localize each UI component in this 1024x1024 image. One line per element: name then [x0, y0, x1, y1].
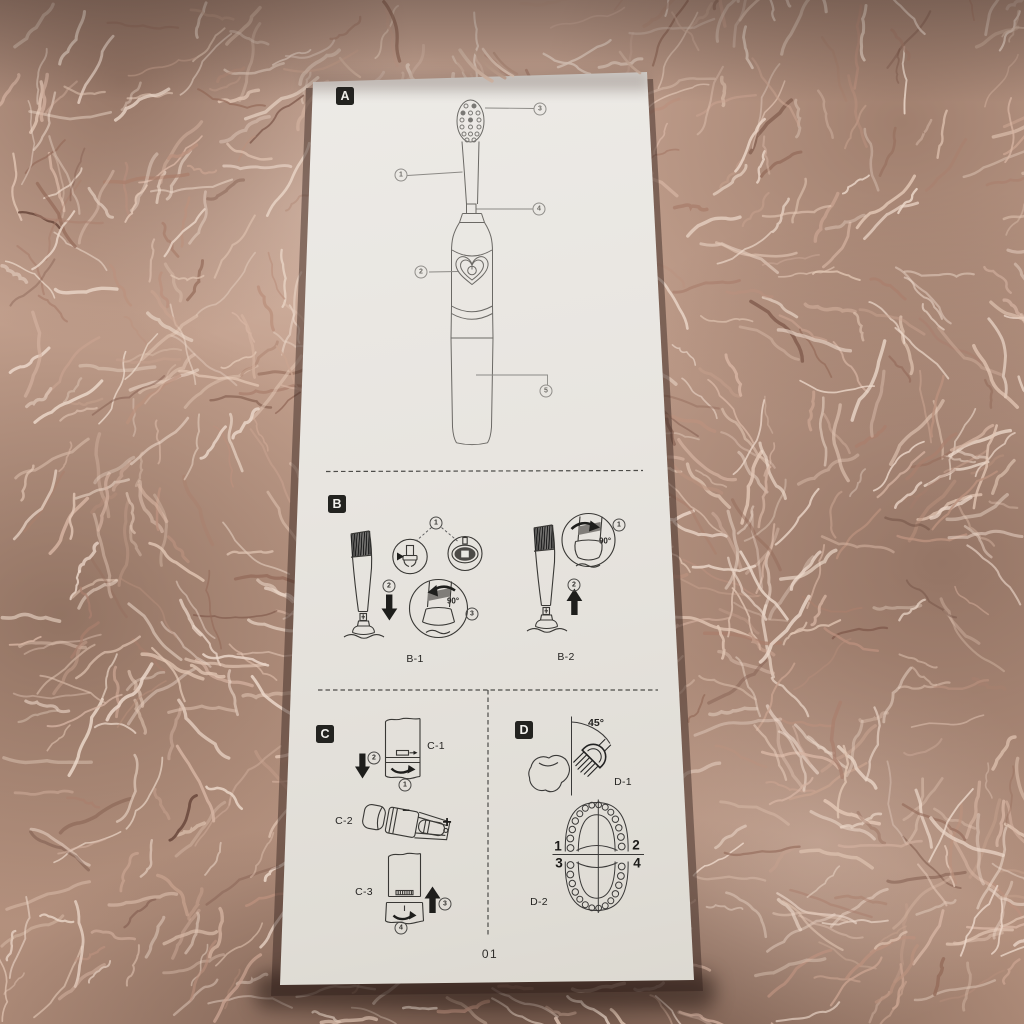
fur-strands-over-paper-edge [0, 0, 1024, 1024]
photo-of-manual-on-fur-carpet: A B C D 3 1 4 2 5 1 2 3 90° B-1 1 2 90° … [0, 0, 1024, 1024]
